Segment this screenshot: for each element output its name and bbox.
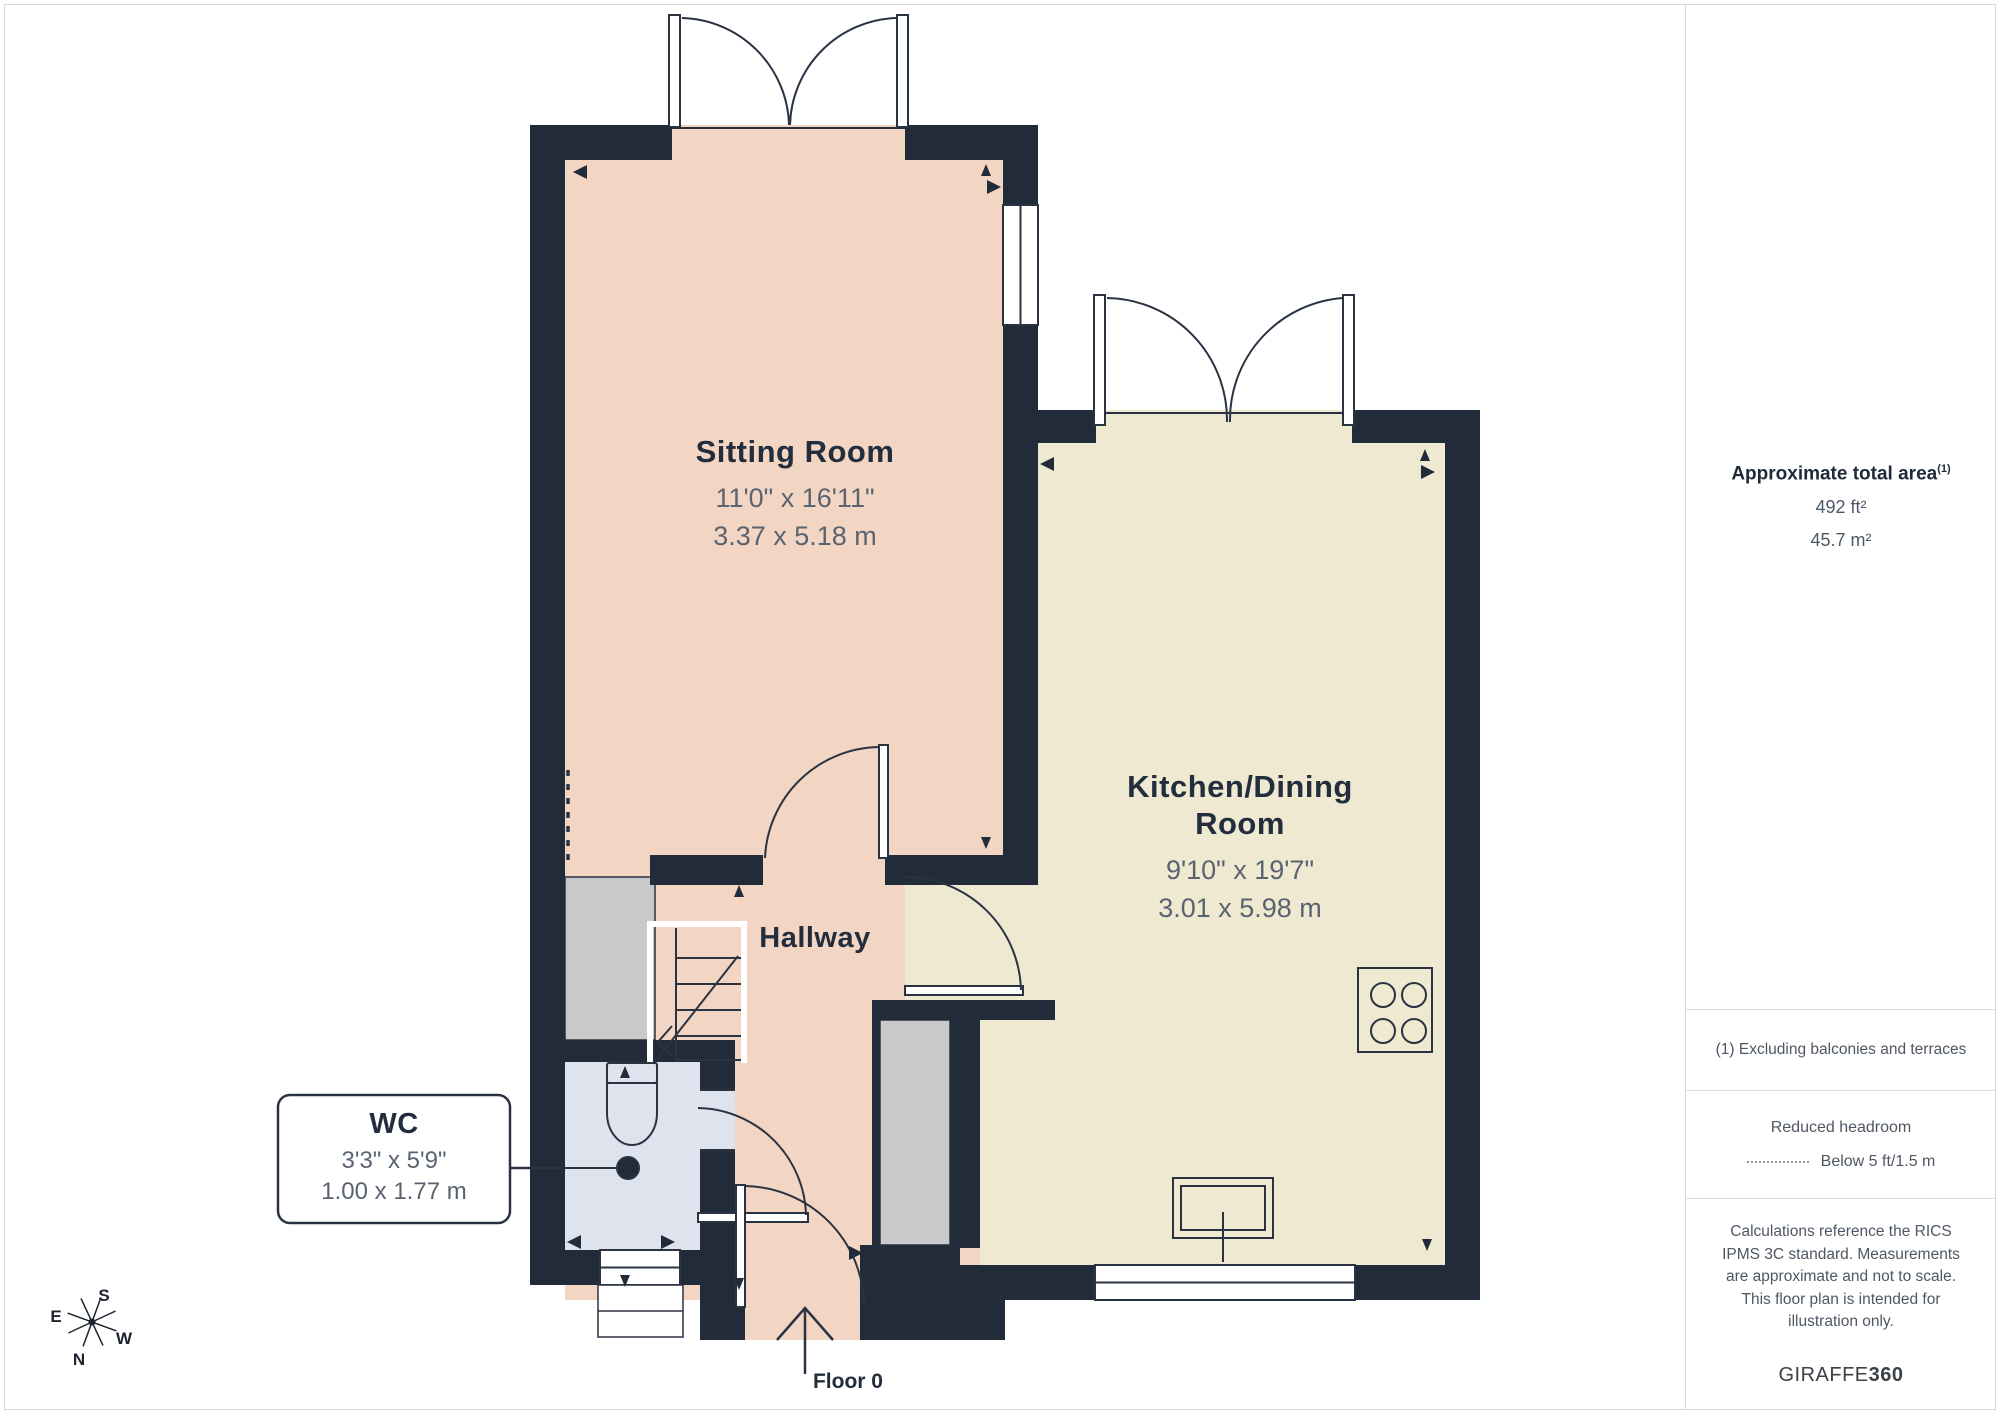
disclaimer-section: Calculations reference the RICS IPMS 3C …: [1686, 1198, 1996, 1409]
sitting-room-window: [1003, 205, 1038, 325]
floorplan-drawing: Sitting Room 11'0" x 16'11" 3.37 x 5.18 …: [0, 0, 1690, 1414]
total-area-section: Approximate total area(1) 492 ft² 45.7 m…: [1686, 5, 1996, 1009]
kitchen-title-line2: Room: [1195, 806, 1285, 841]
wall-sr-east-lower: [1003, 325, 1038, 885]
wc-door-threshold: [700, 1090, 735, 1150]
compass-letters: S E W N: [50, 1286, 133, 1369]
understairs-storage: [565, 877, 655, 1040]
wall-west: [530, 125, 565, 1285]
compass-south: S: [98, 1286, 109, 1305]
disclaimer-text: Calculations reference the RICS IPMS 3C …: [1714, 1221, 1968, 1333]
wall-kitchen-east: [1445, 410, 1480, 1300]
wall-sr-east-upper: [1003, 125, 1038, 205]
compass-north: N: [73, 1350, 85, 1369]
floor-label: Floor 0: [813, 1370, 883, 1393]
total-area-title-text: Approximate total area: [1731, 463, 1937, 484]
kitchen-title-line1: Kitchen/Dining: [1127, 769, 1353, 804]
sitting-room-french-doors: [669, 15, 908, 128]
info-sidebar: Approximate total area(1) 492 ft² 45.7 m…: [1685, 5, 1996, 1409]
kitchen-dims-m: 3.01 x 5.98 m: [1158, 893, 1322, 923]
wall-kitchen-south-left: [950, 1265, 1095, 1300]
kitchen-floor: [1030, 443, 1445, 1265]
entrance-step: [598, 1285, 683, 1337]
compass-west: W: [116, 1329, 133, 1348]
brand-suffix: 360: [1869, 1364, 1904, 1386]
wall-cupboard-east: [950, 1018, 980, 1248]
kitchen-french-doors: [1094, 295, 1354, 425]
excluding-note: (1) Excluding balconies and terraces: [1716, 1041, 1967, 1059]
wall-kitchen-north-left: [1003, 410, 1096, 443]
wall-hall-kitchen: [875, 1000, 1055, 1020]
wall-wc-south-right: [680, 1250, 735, 1285]
entrance-threshold: [745, 1300, 860, 1340]
kitchen-floor-southwest: [980, 1018, 1030, 1265]
sitting-room-title: Sitting Room: [696, 434, 895, 469]
wall-cupboard-south: [860, 1245, 960, 1303]
wc-dims-ft: 3'3" x 5'9": [342, 1147, 447, 1174]
wc-floor: [565, 1062, 700, 1250]
wc-callout: WC 3'3" x 5'9" 1.00 x 1.77 m: [278, 1095, 562, 1223]
sitting-room-door-threshold: [672, 125, 905, 160]
wc-title: WC: [369, 1108, 418, 1140]
wall-sr-south-left: [650, 855, 763, 885]
hallway-title: Hallway: [759, 922, 871, 954]
kitchen-door-threshold: [1096, 410, 1352, 443]
wall-cupboard-west: [872, 1000, 880, 1248]
dotted-line-icon: [1747, 1161, 1809, 1163]
total-area-superscript: (1): [1937, 463, 1950, 475]
wall-north-left: [530, 125, 672, 160]
excluding-note-section: (1) Excluding balconies and terraces: [1686, 1009, 1996, 1090]
total-area-ft: 492 ft²: [1815, 497, 1866, 518]
sitting-room-dims-m: 3.37 x 5.18 m: [713, 521, 877, 551]
reduced-headroom-legend: Below 5 ft/1.5 m: [1821, 1153, 1936, 1171]
reduced-headroom-section: Reduced headroom Below 5 ft/1.5 m: [1686, 1090, 1996, 1198]
compass-rose: S E W N: [50, 1286, 133, 1369]
compass-east: E: [50, 1307, 61, 1326]
kitchen-dims-ft: 9'10" x 19'7": [1166, 855, 1314, 885]
reduced-headroom-legend-row: Below 5 ft/1.5 m: [1747, 1153, 1936, 1171]
wc-dims-m: 1.00 x 1.77 m: [321, 1178, 466, 1205]
wall-wc-south-left: [530, 1250, 600, 1285]
compass-center: [89, 1319, 96, 1326]
floorplan-page: Sitting Room 11'0" x 16'11" 3.37 x 5.18 …: [0, 0, 2000, 1414]
reduced-headroom-title: Reduced headroom: [1771, 1119, 1912, 1137]
kitchen-window: [1095, 1265, 1355, 1300]
wall-sr-south-right: [885, 855, 1038, 885]
wall-hall-south-right: [860, 1300, 1005, 1340]
brand-name: GIRAFFE: [1778, 1364, 1868, 1386]
brand-logo: GIRAFFE360: [1778, 1364, 1903, 1387]
total-area-title: Approximate total area(1): [1731, 463, 1950, 485]
cupboard-storage: [880, 1020, 950, 1245]
wall-kitchen-south-right: [1355, 1265, 1480, 1300]
wc-window: [600, 1250, 680, 1285]
wall-wc-east-upper: [700, 1040, 735, 1090]
total-area-m: 45.7 m²: [1810, 530, 1871, 551]
sitting-room-dims-ft: 11'0" x 16'11": [715, 483, 874, 513]
